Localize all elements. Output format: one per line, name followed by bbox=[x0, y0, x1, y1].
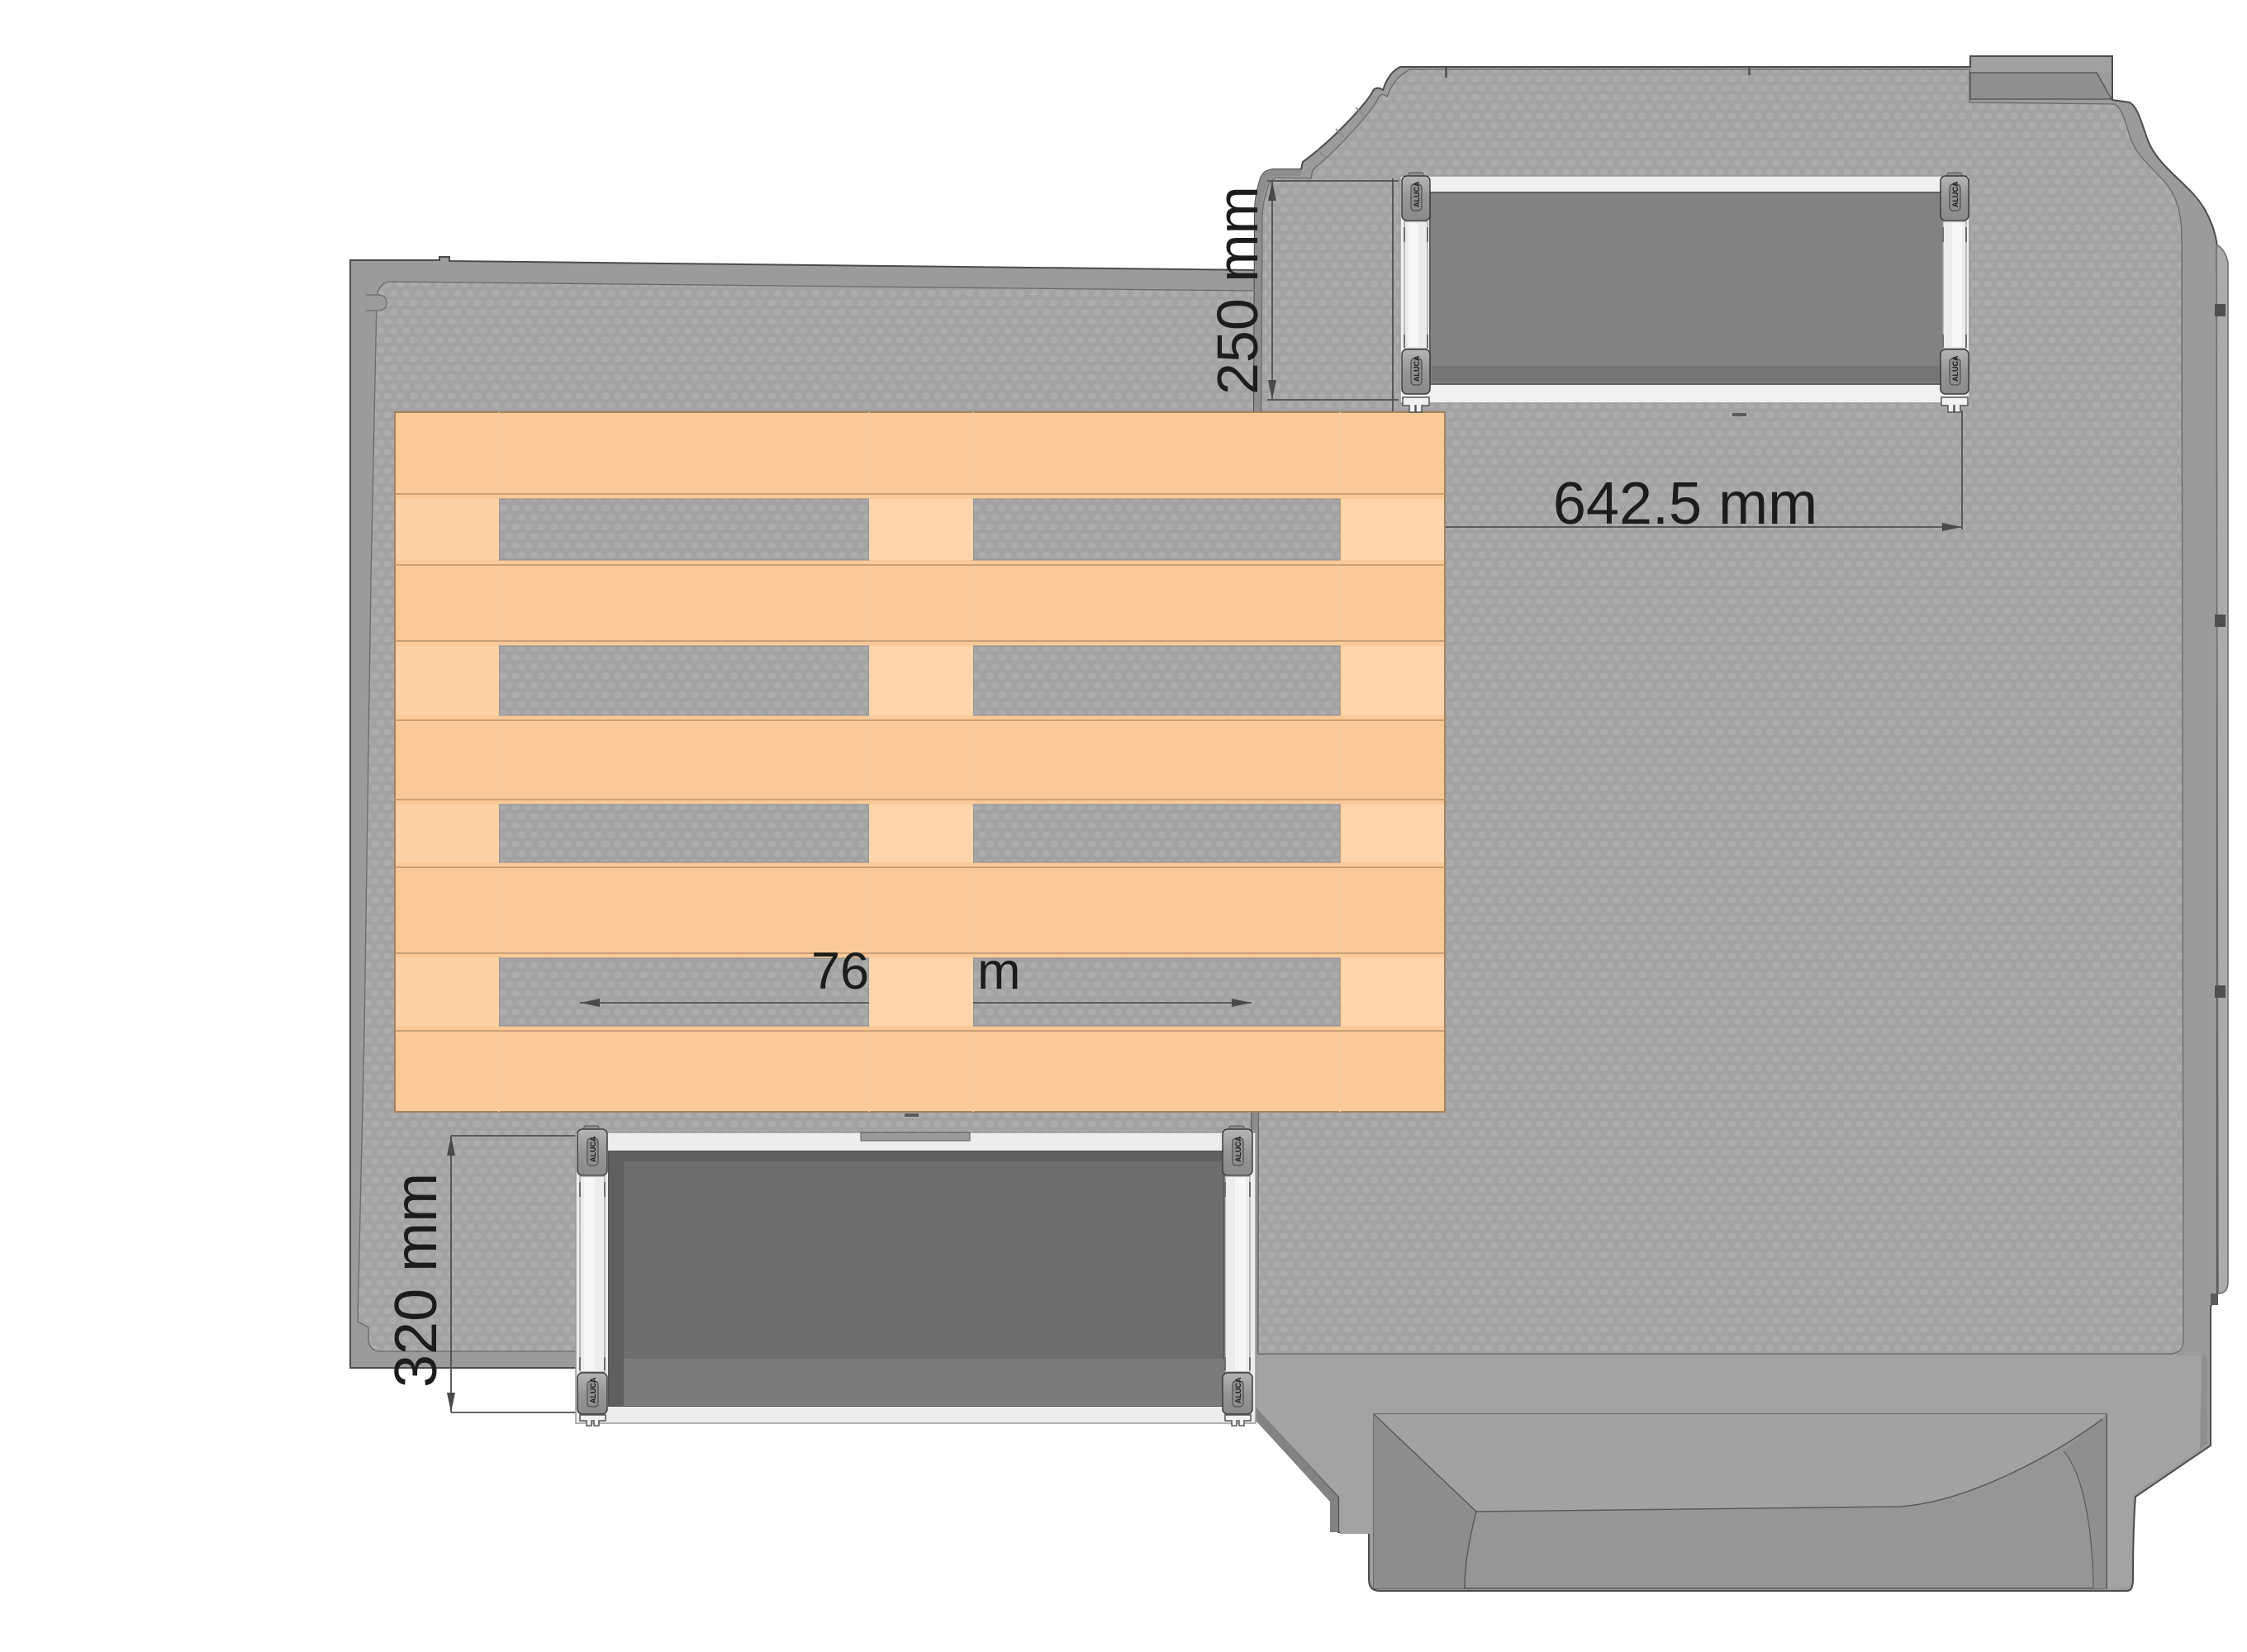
svg-text:ALUCA: ALUCA bbox=[1234, 1136, 1242, 1162]
svg-text:320 mm: 320 mm bbox=[383, 1173, 449, 1388]
svg-text:ALUCA: ALUCA bbox=[589, 1136, 597, 1162]
svg-text:ALUCA: ALUCA bbox=[589, 1377, 597, 1403]
svg-text:ALUCA: ALUCA bbox=[1413, 181, 1421, 207]
svg-text:ALUCA: ALUCA bbox=[1413, 355, 1421, 382]
svg-text:m: m bbox=[977, 942, 1020, 1000]
svg-text:76: 76 bbox=[811, 942, 869, 1000]
svg-text:250 mm: 250 mm bbox=[1205, 186, 1270, 395]
svg-text:ALUCA: ALUCA bbox=[1951, 355, 1960, 382]
svg-text:ALUCA: ALUCA bbox=[1234, 1377, 1242, 1403]
svg-text:642.5 mm: 642.5 mm bbox=[1553, 471, 1817, 537]
svg-text:ALUCA: ALUCA bbox=[1951, 181, 1960, 207]
